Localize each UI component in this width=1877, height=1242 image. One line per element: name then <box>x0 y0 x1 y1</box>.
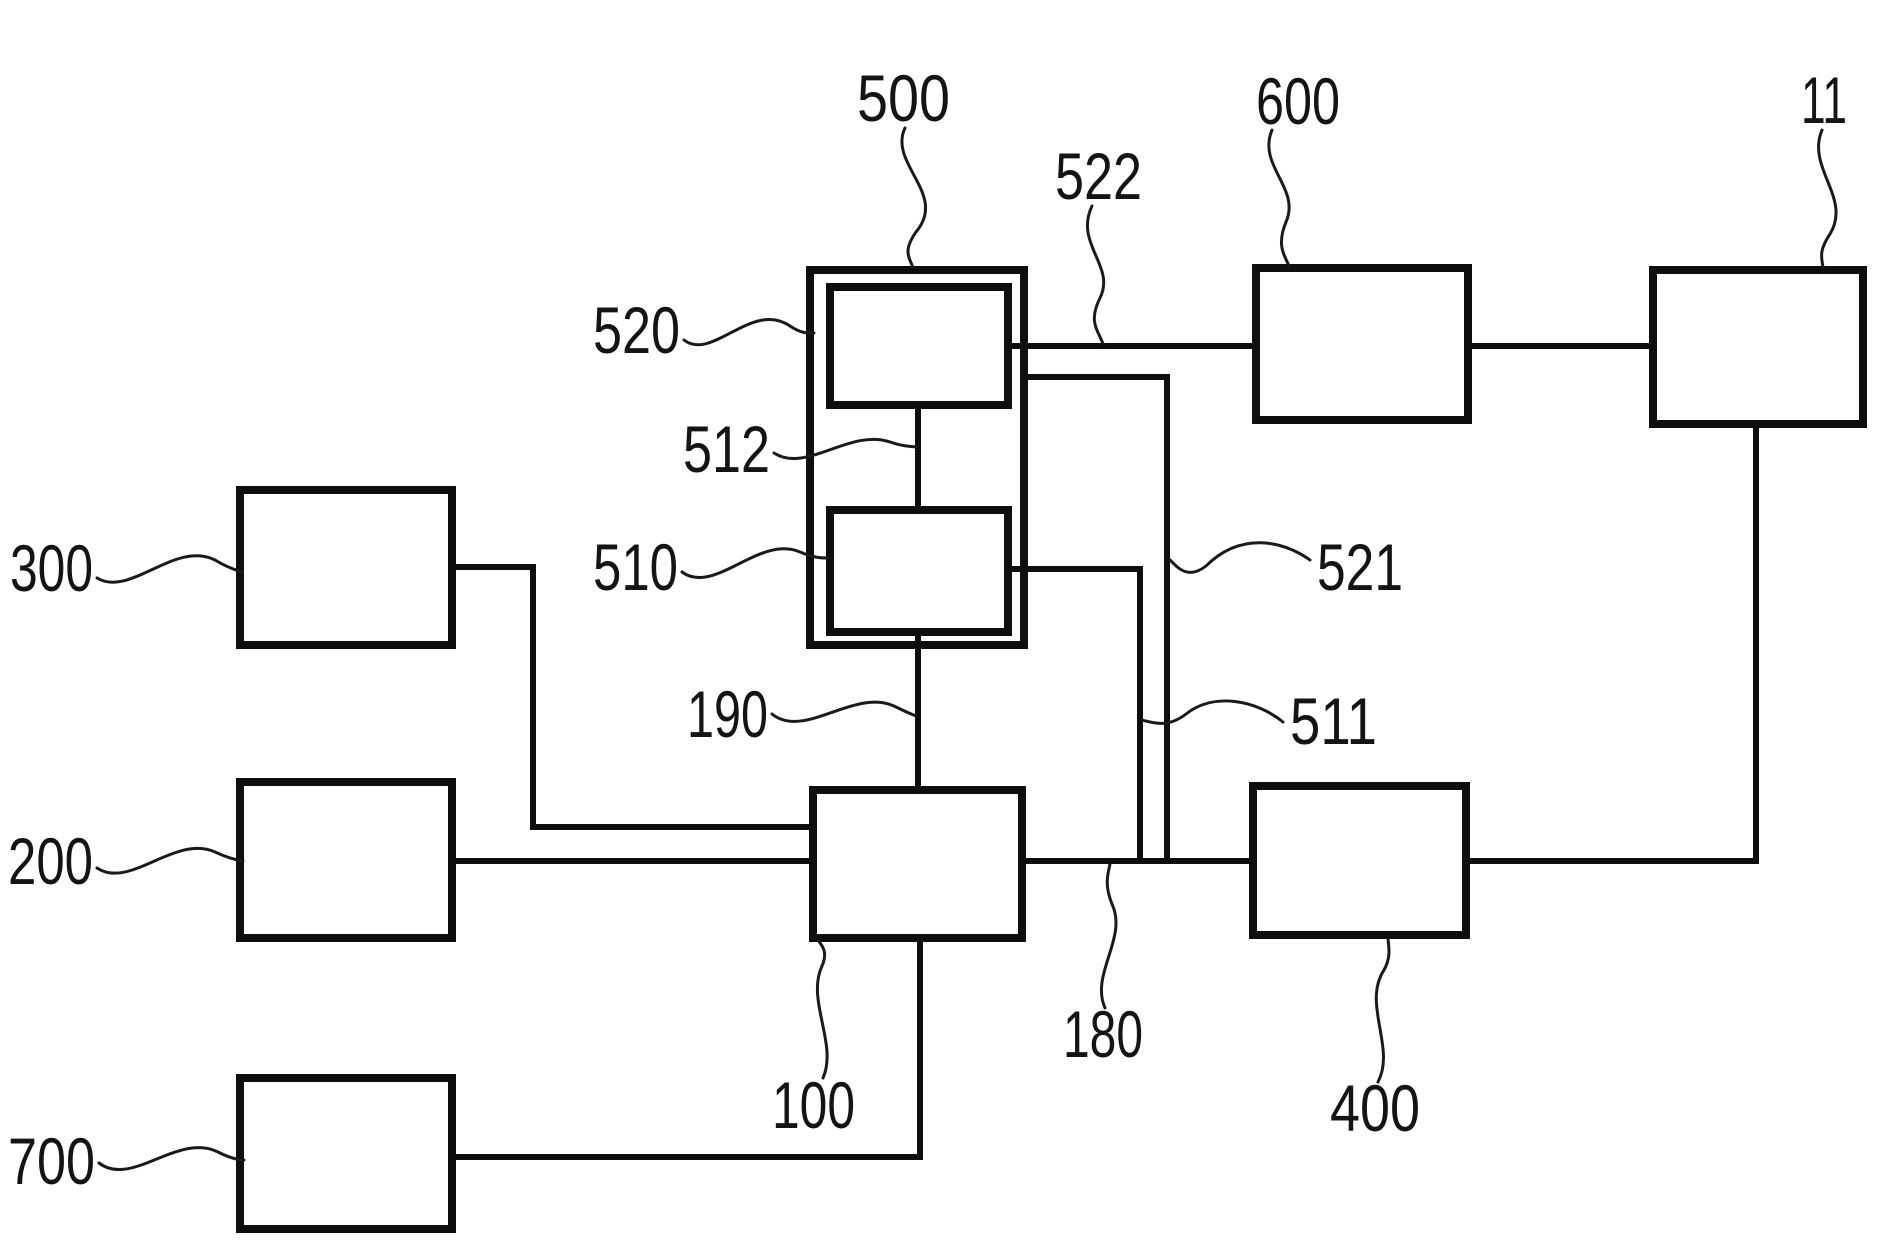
ref-label-500: 500 <box>857 61 950 135</box>
ref-label-400: 400 <box>1330 1071 1420 1145</box>
ref-label-510: 510 <box>593 530 678 604</box>
box-200 <box>240 782 452 938</box>
box-11 <box>1653 270 1863 424</box>
leader-511 <box>1142 701 1283 723</box>
box-100 <box>813 790 1022 938</box>
leader-300 <box>97 556 242 583</box>
leader-400 <box>1376 938 1389 1082</box>
connector-500-down-bus-521 <box>1024 377 1167 861</box>
leader-600 <box>1269 130 1289 266</box>
box-700 <box>240 1078 452 1229</box>
ref-label-521: 521 <box>1317 530 1403 604</box>
box-510 <box>830 510 1008 632</box>
ref-label-200: 200 <box>8 824 93 898</box>
ref-label-512: 512 <box>683 412 770 486</box>
leader-521 <box>1170 543 1310 573</box>
leader-100 <box>817 940 827 1078</box>
box-300 <box>240 490 452 645</box>
leader-520 <box>684 320 814 345</box>
ref-label-522: 522 <box>1055 139 1142 213</box>
ref-label-700: 700 <box>8 1124 95 1198</box>
leader-180 <box>1101 864 1116 1008</box>
ref-label-180: 180 <box>1063 997 1143 1071</box>
leader-700 <box>99 1148 244 1170</box>
figure-canvas: 5005226001152051251019052151130020070010… <box>0 0 1877 1242</box>
leader-190 <box>772 702 916 721</box>
leader-512 <box>774 439 916 458</box>
leader-500 <box>902 128 926 268</box>
ref-label-520: 520 <box>593 293 680 367</box>
box-600 <box>1256 268 1468 420</box>
box-400 <box>1253 786 1466 935</box>
block-diagram: 5005226001152051251019052151130020070010… <box>0 0 1877 1242</box>
leader-522 <box>1087 206 1103 344</box>
box-520 <box>830 287 1008 405</box>
ref-label-511: 511 <box>1290 684 1377 758</box>
ref-label-300: 300 <box>10 531 93 605</box>
ref-label-190: 190 <box>687 677 768 751</box>
leader-200 <box>97 848 243 873</box>
ref-label-100: 100 <box>772 1068 855 1142</box>
ref-label-600: 600 <box>1256 64 1340 138</box>
leader-11 <box>1819 130 1837 268</box>
ref-label-11: 11 <box>1801 63 1847 137</box>
connector-400-to-11 <box>1466 424 1756 861</box>
